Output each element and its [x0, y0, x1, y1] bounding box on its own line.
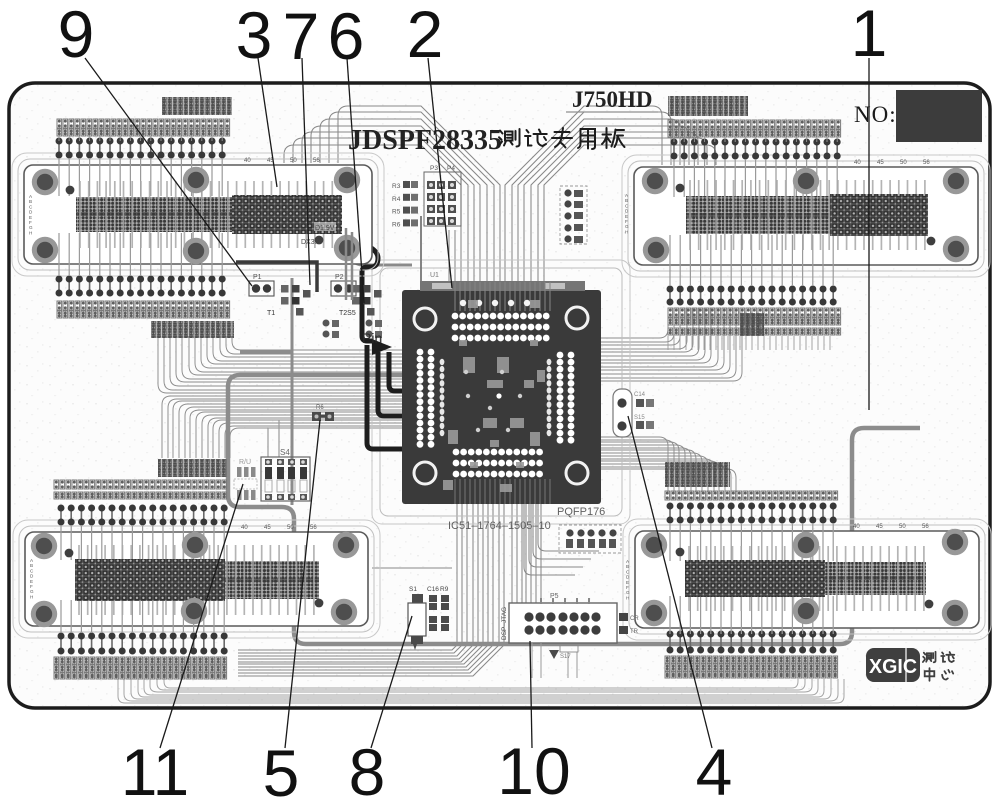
svg-text:PQFP176: PQFP176	[557, 506, 605, 518]
svg-text:5: 5	[263, 736, 300, 803]
svg-text:50: 50	[900, 160, 907, 166]
svg-text:Pin: Pin	[362, 330, 382, 346]
svg-text:DX3.3: DX3.3	[301, 239, 321, 246]
svg-text:XGIC: XGIC	[869, 656, 917, 678]
svg-text:H: H	[30, 594, 33, 599]
svg-text:1: 1	[851, 0, 888, 70]
svg-text:56: 56	[310, 525, 317, 531]
svg-text:T1: T1	[267, 310, 275, 317]
svg-text:40: 40	[853, 524, 860, 530]
svg-text:P1: P1	[253, 274, 262, 281]
svg-text:11: 11	[121, 735, 190, 803]
svg-text:45: 45	[264, 525, 271, 531]
svg-text:56: 56	[313, 158, 320, 164]
svg-text:H: H	[626, 595, 629, 600]
svg-text:H: H	[29, 230, 32, 235]
svg-text:6: 6	[328, 0, 365, 73]
svg-text:R6: R6	[316, 405, 324, 411]
svg-text:R4: R4	[392, 196, 401, 203]
svg-text:10: 10	[497, 734, 570, 803]
svg-text:R/U: R/U	[239, 459, 251, 466]
svg-text:50: 50	[899, 524, 906, 530]
svg-text:56: 56	[922, 524, 929, 530]
svg-text:R9: R9	[440, 586, 449, 593]
svg-text:P3: P3	[430, 165, 438, 172]
svg-text:56: 56	[923, 160, 930, 166]
svg-text:P5: P5	[550, 593, 559, 600]
svg-text:R5: R5	[392, 209, 401, 216]
svg-text:40: 40	[241, 525, 248, 531]
svg-text:IC51–1764–1505–10: IC51–1764–1505–10	[448, 520, 551, 532]
svg-text:2: 2	[407, 0, 444, 71]
svg-text:JDSPF28335: JDSPF28335	[348, 125, 502, 156]
svg-text:NO:: NO:	[854, 102, 897, 127]
svg-text:S15: S15	[634, 415, 645, 421]
svg-text:C16: C16	[427, 586, 439, 593]
svg-text:45: 45	[877, 160, 884, 166]
svg-text:P4: P4	[447, 165, 455, 172]
svg-text:40: 40	[854, 160, 861, 166]
svg-text:R6: R6	[392, 221, 401, 228]
svg-text:50: 50	[287, 525, 294, 531]
svg-text:D1.9V: D1.9V	[315, 225, 335, 232]
svg-text:8: 8	[349, 735, 386, 803]
svg-text:S4: S4	[280, 448, 290, 457]
svg-text:3: 3	[236, 0, 273, 72]
svg-text:S17: S17	[560, 654, 571, 660]
svg-text:4: 4	[696, 735, 733, 803]
svg-text:S1: S1	[409, 586, 417, 593]
svg-text:CR: CR	[630, 616, 639, 622]
svg-text:40: 40	[244, 158, 251, 164]
svg-text:7: 7	[283, 0, 320, 73]
svg-text:U1: U1	[430, 272, 439, 279]
svg-text:R3: R3	[392, 183, 401, 190]
svg-text:H: H	[625, 229, 628, 234]
svg-text:J750HD: J750HD	[572, 87, 653, 112]
svg-text:P2: P2	[335, 274, 344, 281]
svg-text:50: 50	[290, 158, 297, 164]
svg-text:45: 45	[876, 524, 883, 530]
svg-text:T2S5: T2S5	[339, 310, 356, 317]
svg-text:9: 9	[58, 0, 95, 71]
svg-text:DSP–JTAG: DSP–JTAG	[501, 607, 508, 640]
svg-text:TR: TR	[630, 629, 639, 635]
svg-text:C14: C14	[634, 392, 646, 398]
